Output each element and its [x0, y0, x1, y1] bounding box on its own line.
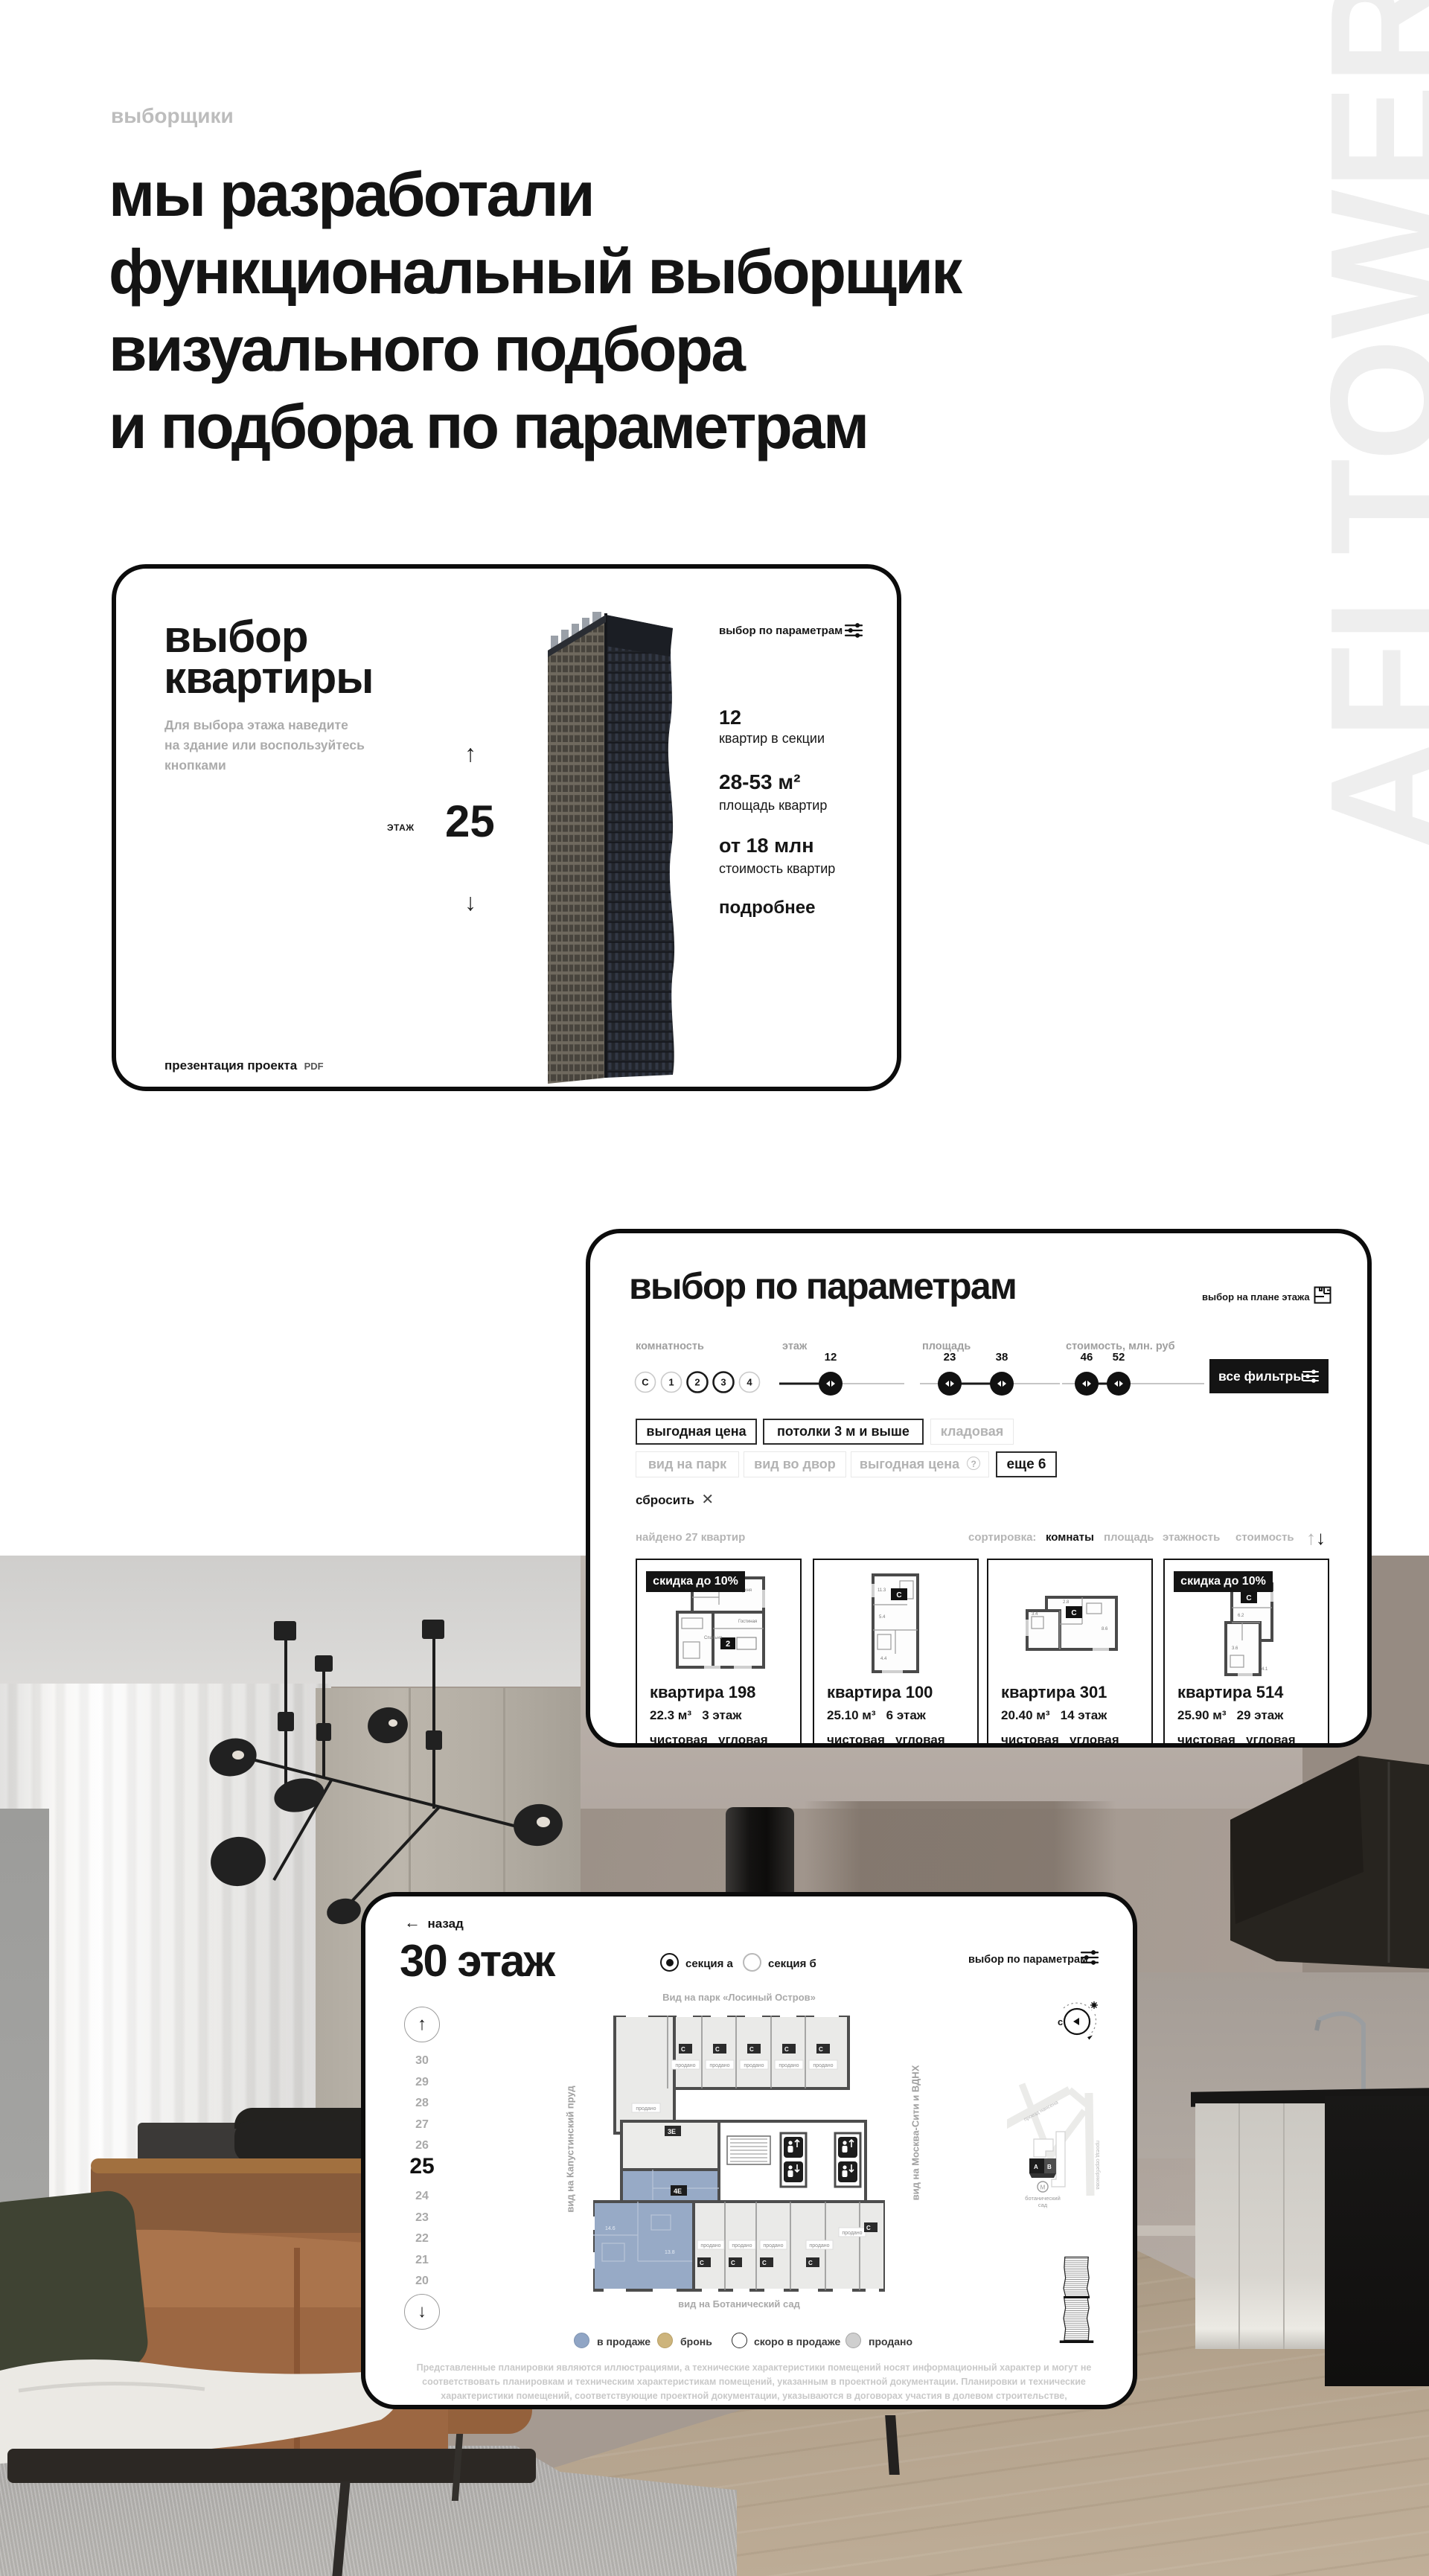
svg-text:1: 1 — [668, 1377, 674, 1388]
svg-text:3Е: 3Е — [668, 2128, 676, 2135]
svg-text:3.6: 3.6 — [1232, 1646, 1238, 1651]
svg-text:2: 2 — [726, 1640, 730, 1649]
svg-text:продано: продано — [732, 2243, 752, 2249]
svg-text:23: 23 — [944, 1351, 956, 1364]
svg-text:продано: продано — [842, 2231, 862, 2236]
svg-text:46: 46 — [1081, 1351, 1093, 1364]
svg-text:С: С — [642, 1377, 649, 1388]
svg-text:С: С — [749, 2046, 754, 2053]
svg-text:2: 2 — [694, 1377, 700, 1388]
svg-text:Спальня: Спальня — [704, 1636, 722, 1640]
svg-text:38: 38 — [996, 1351, 1008, 1364]
svg-text:С: С — [681, 2046, 685, 2053]
svg-text:В: В — [1047, 2164, 1052, 2170]
svg-text:продано: продано — [779, 2063, 799, 2068]
svg-text:Гостиная: Гостиная — [738, 1620, 757, 1624]
svg-text:14.6: 14.6 — [605, 2226, 616, 2231]
svg-text:4: 4 — [747, 1377, 752, 1388]
svg-text:продано: продано — [809, 2243, 829, 2249]
svg-text:продано: продано — [709, 2063, 729, 2068]
svg-text:6.2: 6.2 — [1238, 1614, 1244, 1618]
svg-text:С: С — [808, 2260, 813, 2266]
svg-text:4.4: 4.4 — [880, 1657, 887, 1661]
svg-text:5.4: 5.4 — [879, 1615, 886, 1620]
svg-text:12: 12 — [825, 1351, 837, 1364]
svg-text:С: С — [700, 2260, 704, 2266]
svg-text:С: С — [896, 1591, 901, 1599]
svg-text:3: 3 — [720, 1377, 726, 1388]
svg-text:3.4: 3.4 — [1032, 1612, 1038, 1617]
svg-text:11.3: 11.3 — [877, 1588, 886, 1593]
svg-text:С: С — [784, 2046, 789, 2053]
svg-text:С: С — [819, 2046, 823, 2053]
svg-text:продано: продано — [636, 2106, 656, 2112]
svg-text:С: С — [1246, 1594, 1251, 1602]
svg-text:С: С — [866, 2225, 871, 2231]
svg-text:С: С — [762, 2260, 767, 2266]
svg-text:продано: продано — [700, 2243, 720, 2249]
svg-text:продано: продано — [763, 2243, 783, 2249]
svg-text:С: С — [731, 2260, 735, 2266]
svg-text:продано: продано — [744, 2063, 764, 2068]
svg-text:2.8: 2.8 — [1063, 1600, 1070, 1605]
svg-text:с: с — [1058, 2016, 1063, 2027]
svg-text:4.1: 4.1 — [1262, 1667, 1268, 1672]
svg-text:4Е: 4Е — [674, 2187, 682, 2195]
svg-text:ботанический: ботанический — [1025, 2195, 1061, 2202]
svg-text:проезд серебрякова: проезд серебрякова — [1095, 2141, 1101, 2190]
svg-text:С: С — [715, 2046, 720, 2053]
svg-text:сад: сад — [1038, 2202, 1048, 2208]
svg-text:8.6: 8.6 — [1102, 1627, 1108, 1631]
svg-text:13.8: 13.8 — [665, 2250, 675, 2255]
svg-text:С: С — [1071, 1609, 1076, 1617]
svg-text:продано: продано — [675, 2063, 695, 2068]
svg-text:А: А — [1034, 2164, 1038, 2170]
svg-text:М: М — [1040, 2185, 1046, 2191]
svg-text:52: 52 — [1113, 1351, 1125, 1364]
svg-text:продано: продано — [813, 2063, 833, 2068]
